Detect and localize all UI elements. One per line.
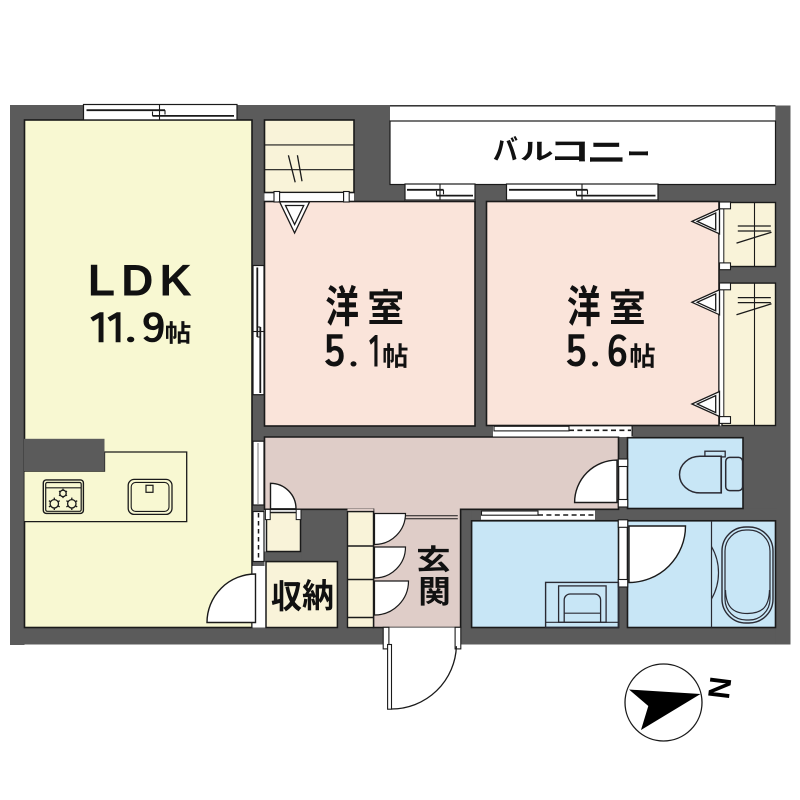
svg-text:LDK: LDK bbox=[88, 257, 198, 306]
svg-text:N: N bbox=[701, 675, 737, 701]
